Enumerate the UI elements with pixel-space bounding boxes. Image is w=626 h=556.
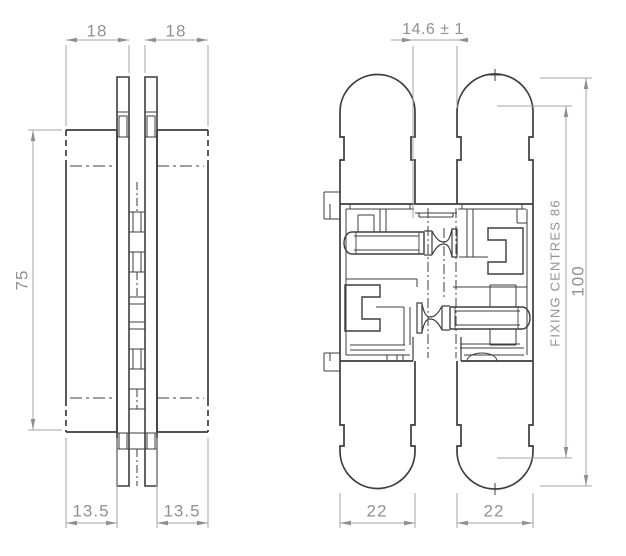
hinge-spec-drawing: 18 18 75 13.5 13.5 14.6 ± 1 FIXING CENTR… (0, 0, 626, 556)
dimension-arrows (31, 38, 588, 525)
left-view-geometry (66, 77, 208, 486)
right-view-geometry (324, 69, 533, 495)
dim-label-arm-right: 13.5 (163, 503, 200, 520)
dim-label-barrel-left: 22 (367, 503, 388, 520)
technical-drawing-canvas (0, 0, 626, 556)
dim-label-arm-left: 13.5 (72, 503, 109, 520)
dim-label-barrel-right: 22 (484, 503, 505, 520)
dim-label-height-75: 75 (14, 270, 31, 291)
dim-label-width-left: 18 (87, 23, 108, 40)
dim-label-gap-tolerance: 14.6 ± 1 (402, 22, 464, 38)
dim-label-height-100: 100 (570, 265, 587, 296)
dim-label-fixing-centres: FIXING CENTRES 86 (549, 199, 562, 347)
dim-label-width-right: 18 (166, 23, 187, 40)
dimension-lines (28, 40, 592, 528)
